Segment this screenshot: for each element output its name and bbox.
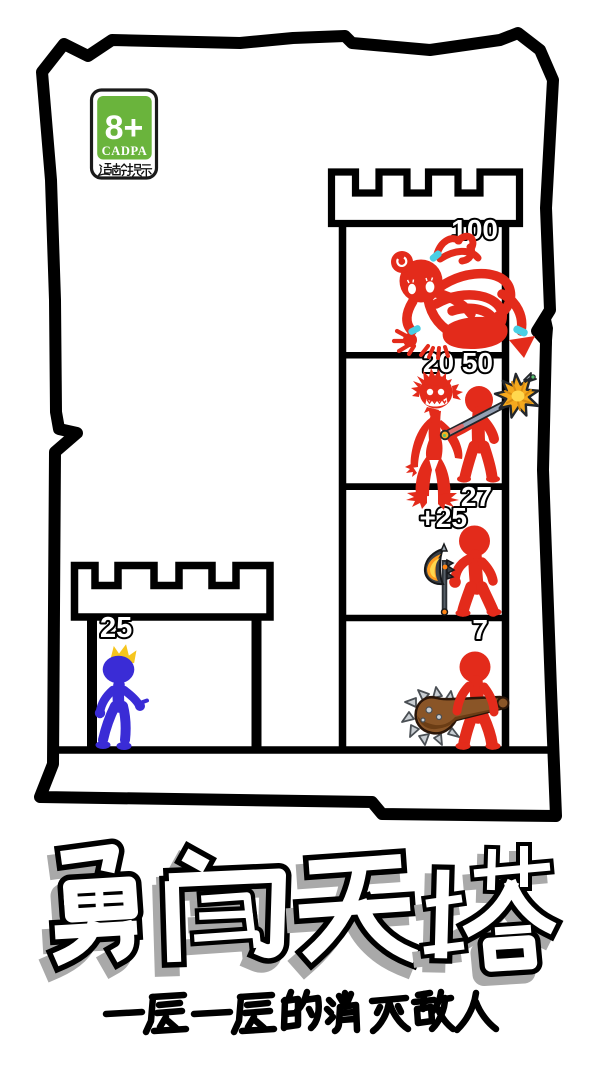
svg-text:25: 25 [100,612,132,644]
svg-text:8+: 8+ [105,109,144,147]
svg-text:7: 7 [472,614,488,645]
svg-text:CADPA: CADPA [102,144,148,158]
